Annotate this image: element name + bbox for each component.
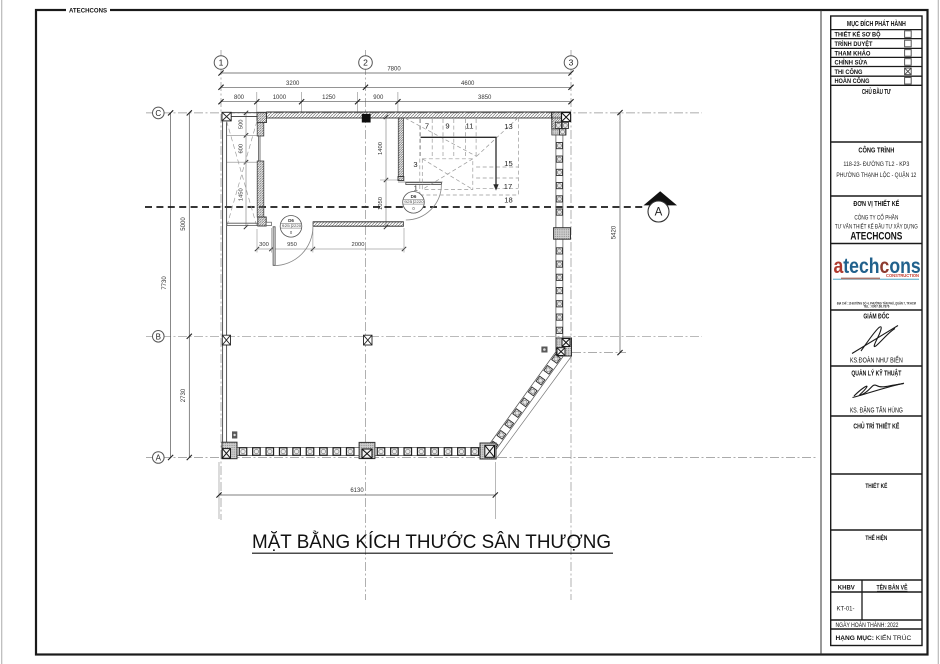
svg-text:1000: 1000 (273, 95, 287, 101)
svg-text:CHỈNH SỬA: CHỈNH SỬA (835, 57, 868, 66)
svg-text:2000: 2000 (352, 242, 365, 248)
svg-text:1450: 1450 (238, 188, 244, 201)
svg-text:5000: 5000 (181, 217, 187, 231)
svg-text:MẶT BẰNG KÍCH THƯỚC SÂN THƯỢNG: MẶT BẰNG KÍCH THƯỚC SÂN THƯỢNG (252, 531, 611, 553)
svg-text:1: 1 (219, 58, 224, 68)
svg-text:300: 300 (259, 242, 269, 248)
svg-text:KHBV: KHBV (838, 585, 856, 592)
svg-text:KS.ĐOÀN NHƯ BIỂN: KS.ĐOÀN NHƯ BIỂN (850, 356, 903, 365)
svg-text:15: 15 (504, 159, 512, 168)
svg-text:900: 900 (373, 95, 384, 101)
svg-text:800: 800 (234, 95, 245, 101)
svg-text:THI CÔNG: THI CÔNG (835, 67, 863, 76)
svg-text:3850: 3850 (478, 95, 492, 101)
svg-text:2730: 2730 (181, 388, 187, 402)
svg-text:CÔNG TRÌNH: CÔNG TRÌNH (858, 146, 894, 155)
svg-text:1400: 1400 (378, 142, 384, 155)
svg-text:11: 11 (466, 121, 474, 130)
svg-text:ATECHCONS: ATECHCONS (69, 7, 107, 14)
svg-text:9: 9 (445, 121, 449, 130)
svg-text:2: 2 (363, 58, 368, 68)
svg-text:6130: 6130 (350, 488, 364, 494)
svg-text:3: 3 (569, 58, 574, 68)
svg-text:TRÌNH DUYỆT: TRÌNH DUYỆT (835, 39, 873, 48)
svg-text:HOÀN CÔNG: HOÀN CÔNG (835, 76, 870, 85)
svg-text:1050: 1050 (378, 197, 384, 210)
svg-text:C: C (155, 109, 161, 118)
svg-text:THAM KHẢO: THAM KHẢO (835, 48, 871, 57)
svg-text:17: 17 (504, 182, 512, 191)
svg-text:KT-01-: KT-01- (837, 606, 855, 613)
svg-text:THỂ HIỆN: THỂ HIỆN (865, 534, 887, 542)
svg-text:A: A (655, 207, 663, 219)
svg-text:950: 950 (287, 242, 297, 248)
svg-text:4600: 4600 (461, 81, 475, 87)
svg-text:ATECHCONS: ATECHCONS (850, 231, 902, 243)
svg-text:CONSTRUCTION: CONSTRUCTION (886, 273, 919, 278)
svg-text:500: 500 (238, 119, 244, 129)
svg-text:THIẾT KẾ: THIẾT KẾ (865, 483, 887, 490)
svg-text:TÊN BẢN VẼ: TÊN BẢN VẼ (877, 583, 908, 592)
svg-text:13: 13 (504, 122, 512, 131)
svg-text:7: 7 (425, 121, 429, 130)
svg-text:118-23- ĐƯỜNG TL2 - KP3: 118-23- ĐƯỜNG TL2 - KP3 (843, 159, 909, 168)
svg-text:TEL : 0907.68.7876: TEL : 0907.68.7876 (863, 305, 889, 309)
svg-text:CHỦ ĐẦU TƯ: CHỦ ĐẦU TƯ (862, 86, 891, 96)
svg-text:D6: D6 (411, 194, 417, 199)
svg-text:NGÀY HOÀN THÀNH: 2022: NGÀY HOÀN THÀNH: 2022 (836, 620, 899, 629)
svg-text:D6: D6 (288, 218, 294, 223)
svg-text:925: 925 (404, 199, 413, 204)
svg-text:600: 600 (238, 144, 244, 154)
svg-text:2220: 2220 (414, 199, 424, 204)
svg-text:7730: 7730 (162, 276, 168, 290)
svg-text:18: 18 (504, 195, 512, 204)
svg-text:3: 3 (413, 160, 417, 169)
svg-text:QUẢN LÝ KỸ THUẬT: QUẢN LÝ KỸ THUẬT (851, 369, 902, 378)
svg-text:5420: 5420 (612, 225, 618, 239)
svg-text:A: A (156, 454, 162, 463)
svg-text:1250: 1250 (322, 95, 336, 101)
svg-text:7800: 7800 (387, 67, 401, 73)
svg-text:B: B (156, 332, 161, 341)
svg-text:925: 925 (282, 223, 291, 228)
svg-text:2220: 2220 (292, 223, 302, 228)
svg-text:3200: 3200 (286, 81, 300, 87)
svg-text:PHƯỜNG THẠNH LỘC - QUẬN 12: PHƯỜNG THẠNH LỘC - QUẬN 12 (836, 170, 916, 179)
svg-text:ĐƠN VỊ THIẾT KẾ: ĐƠN VỊ THIẾT KẾ (853, 198, 899, 208)
svg-text:MỤC ĐÍCH PHÁT HÀNH: MỤC ĐÍCH PHÁT HÀNH (847, 19, 906, 28)
